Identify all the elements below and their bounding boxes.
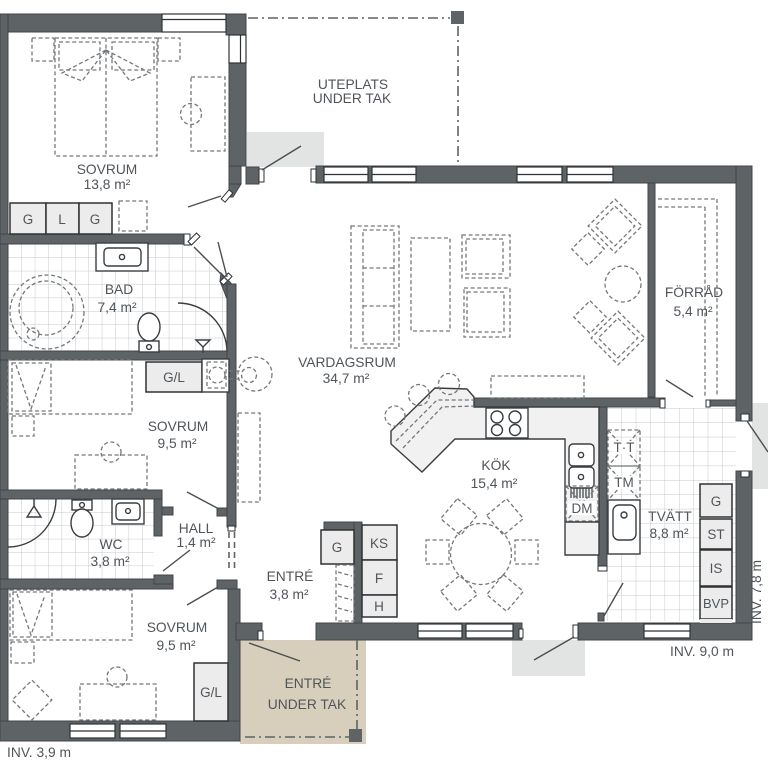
svg-text:ST: ST [707, 527, 724, 542]
svg-text:34,7 m²: 34,7 m² [323, 371, 370, 386]
svg-text:UNDER TAK: UNDER TAK [268, 697, 347, 712]
svg-text:SOVRUM: SOVRUM [147, 620, 208, 635]
svg-text:UNDER TAK: UNDER TAK [313, 91, 392, 106]
svg-text:G/L: G/L [200, 685, 222, 700]
svg-text:INV. 9,0 m: INV. 9,0 m [670, 644, 734, 659]
svg-text:3,8 m²: 3,8 m² [90, 554, 130, 569]
svg-text:INV. 3,9 m: INV. 3,9 m [7, 745, 71, 760]
svg-text:WC: WC [100, 537, 123, 552]
svg-text:15,4 m²: 15,4 m² [471, 476, 518, 491]
svg-text:G: G [23, 212, 34, 227]
svg-text:BVP: BVP [703, 596, 729, 611]
svg-text:H: H [374, 599, 384, 614]
svg-text:7,4 m²: 7,4 m² [97, 300, 137, 315]
svg-text:KÖK: KÖK [481, 456, 511, 473]
svg-text:UTEPLATS: UTEPLATS [318, 77, 388, 92]
svg-text:HALL: HALL [179, 521, 214, 536]
svg-text:BAD: BAD [105, 282, 133, 297]
svg-text:TM: TM [614, 475, 634, 490]
svg-text:L: L [58, 212, 66, 227]
svg-text:KS: KS [370, 536, 388, 551]
svg-text:T·T: T·T [614, 440, 635, 455]
svg-text:TVÄTT: TVÄTT [648, 508, 692, 524]
svg-text:DM: DM [572, 501, 593, 516]
svg-text:G/L: G/L [163, 370, 185, 385]
svg-text:ENTRÉ: ENTRÉ [267, 568, 314, 584]
svg-text:9,5 m²: 9,5 m² [157, 436, 197, 451]
svg-text:FÖRRÅD: FÖRRÅD [665, 283, 723, 300]
svg-text:F: F [375, 571, 383, 586]
svg-text:G: G [90, 212, 101, 227]
svg-text:VARDAGSRUM: VARDAGSRUM [298, 355, 396, 370]
svg-text:SOVRUM: SOVRUM [148, 419, 209, 434]
svg-text:5,4 m²: 5,4 m² [673, 304, 713, 319]
svg-text:INV. 7,8 m: INV. 7,8 m [749, 560, 764, 624]
svg-text:IS: IS [710, 561, 723, 576]
svg-text:ENTRÉ: ENTRÉ [285, 675, 332, 691]
svg-text:G: G [711, 494, 722, 509]
svg-text:3,8 m²: 3,8 m² [269, 587, 309, 602]
svg-text:9,5 m²: 9,5 m² [156, 638, 196, 653]
svg-text:SOVRUM: SOVRUM [77, 162, 138, 177]
svg-text:13,8 m²: 13,8 m² [84, 177, 131, 192]
svg-text:1,4 m²: 1,4 m² [176, 535, 216, 550]
svg-text:G: G [332, 540, 343, 555]
svg-text:8,8 m²: 8,8 m² [649, 526, 689, 541]
